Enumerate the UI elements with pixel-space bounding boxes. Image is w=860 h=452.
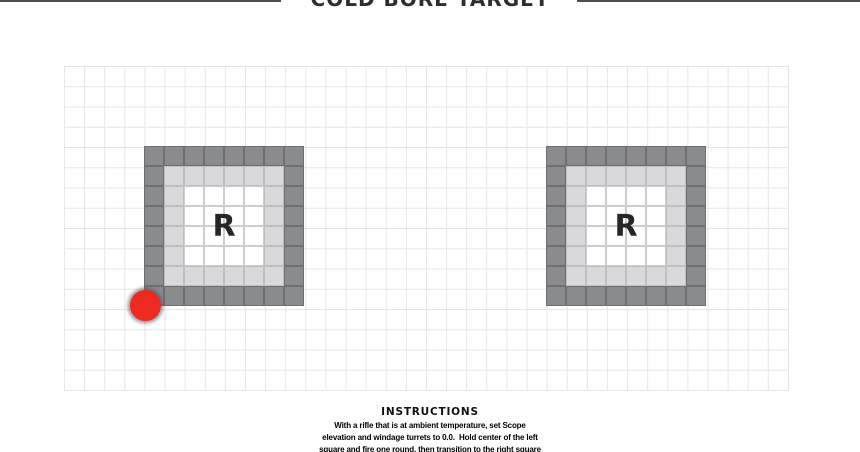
target-cell (284, 166, 304, 186)
target-cell (284, 146, 304, 166)
target-cell (204, 206, 224, 226)
target-cell (566, 206, 586, 226)
target-cell (144, 186, 164, 206)
target-cell (184, 226, 204, 246)
target-cell (686, 286, 706, 306)
target-cell (244, 286, 264, 306)
cold-bore-target-sheet: COLD BORE TARGET R R INSTRUCTIONS With a… (0, 0, 860, 452)
target-cell (224, 286, 244, 306)
target-cell (204, 186, 224, 206)
target-cell (164, 206, 184, 226)
target-cell (284, 286, 304, 306)
target-cell (546, 246, 566, 266)
target-cell (284, 186, 304, 206)
target-cell (686, 246, 706, 266)
right-target: R (546, 146, 706, 306)
target-cell (646, 226, 666, 246)
target-cell (646, 206, 666, 226)
target-cell (566, 146, 586, 166)
target-cell (144, 266, 164, 286)
target-cell (626, 226, 646, 246)
target-cell (546, 206, 566, 226)
target-cell (224, 146, 244, 166)
target-cell (164, 266, 184, 286)
target-cell (244, 146, 264, 166)
target-cell (686, 146, 706, 166)
target-cell (546, 286, 566, 306)
target-cell (606, 146, 626, 166)
target-cell (666, 146, 686, 166)
target-cell (626, 186, 646, 206)
target-cell (586, 266, 606, 286)
right-target-cells (546, 146, 706, 306)
target-cell (586, 146, 606, 166)
target-cell (626, 206, 646, 226)
instructions-line: With a rifle that is at ambient temperat… (0, 420, 860, 432)
target-cell (224, 246, 244, 266)
target-cell (606, 226, 626, 246)
target-cell (546, 226, 566, 246)
target-cell (546, 186, 566, 206)
target-cell (666, 166, 686, 186)
target-cell (686, 206, 706, 226)
target-cell (264, 146, 284, 166)
target-cell (224, 166, 244, 186)
target-cell (606, 266, 626, 286)
target-cell (606, 246, 626, 266)
target-cell (566, 286, 586, 306)
target-cell (566, 186, 586, 206)
instructions-text: With a rifle that is at ambient temperat… (0, 420, 860, 452)
target-cell (546, 266, 566, 286)
target-cell (606, 286, 626, 306)
target-cell (606, 206, 626, 226)
target-cell (586, 166, 606, 186)
target-cell (646, 146, 666, 166)
target-cell (224, 226, 244, 246)
target-cell (264, 166, 284, 186)
target-cell (184, 186, 204, 206)
target-cell (666, 186, 686, 206)
target-cell (244, 226, 264, 246)
target-cell (204, 226, 224, 246)
left-target: R (144, 146, 304, 306)
target-cell (144, 146, 164, 166)
target-cell (284, 246, 304, 266)
target-cell (164, 286, 184, 306)
target-cell (144, 166, 164, 186)
bullet-hole-marker (130, 290, 161, 321)
target-cell (264, 206, 284, 226)
target-cell (626, 266, 646, 286)
left-target-cells (144, 146, 304, 306)
target-cell (244, 206, 264, 226)
target-cell (144, 226, 164, 246)
target-cell (224, 206, 244, 226)
target-cell (264, 186, 284, 206)
target-cell (586, 246, 606, 266)
target-cell (546, 166, 566, 186)
target-cell (284, 206, 304, 226)
target-cell (626, 166, 646, 186)
target-cell (646, 266, 666, 286)
target-cell (686, 166, 706, 186)
target-cell (666, 226, 686, 246)
target-cell (164, 226, 184, 246)
target-cell (566, 266, 586, 286)
target-cell (264, 226, 284, 246)
target-cell (646, 286, 666, 306)
target-cell (224, 186, 244, 206)
target-cell (144, 206, 164, 226)
target-cell (264, 266, 284, 286)
target-cell (646, 246, 666, 266)
target-cell (546, 146, 566, 166)
instructions-block: INSTRUCTIONS With a rifle that is at amb… (0, 406, 860, 452)
target-cell (204, 286, 224, 306)
instructions-line: square and fire one round, then transiti… (0, 444, 860, 452)
target-cell (264, 286, 284, 306)
target-cell (164, 246, 184, 266)
target-cell (606, 186, 626, 206)
target-cell (586, 226, 606, 246)
target-cell (244, 246, 264, 266)
target-cell (204, 146, 224, 166)
target-cell (586, 186, 606, 206)
target-cell (566, 246, 586, 266)
target-cell (204, 166, 224, 186)
target-cell (184, 286, 204, 306)
target-cell (686, 266, 706, 286)
target-cell (204, 246, 224, 266)
target-cell (144, 246, 164, 266)
target-cell (164, 166, 184, 186)
target-cell (184, 206, 204, 226)
target-cell (626, 286, 646, 306)
target-cell (184, 146, 204, 166)
target-cell (666, 246, 686, 266)
target-cell (204, 266, 224, 286)
target-cell (646, 166, 666, 186)
page-title: COLD BORE TARGET (0, 0, 860, 10)
target-cell (586, 206, 606, 226)
target-cell (264, 246, 284, 266)
target-cell (686, 186, 706, 206)
instructions-line: elevation and windage turrets to 0.0. Ho… (0, 432, 860, 444)
target-cell (566, 166, 586, 186)
target-cell (626, 246, 646, 266)
target-cell (606, 166, 626, 186)
target-cell (184, 166, 204, 186)
target-cell (646, 186, 666, 206)
target-cell (284, 226, 304, 246)
target-cell (224, 266, 244, 286)
target-cell (284, 266, 304, 286)
target-cell (184, 266, 204, 286)
target-cell (666, 286, 686, 306)
instructions-heading: INSTRUCTIONS (0, 406, 860, 418)
target-cell (164, 146, 184, 166)
target-cell (244, 166, 264, 186)
target-cell (666, 266, 686, 286)
target-cell (244, 186, 264, 206)
target-cell (244, 266, 264, 286)
target-cell (666, 206, 686, 226)
target-cell (626, 146, 646, 166)
target-cell (566, 226, 586, 246)
target-cell (586, 286, 606, 306)
target-cell (164, 186, 184, 206)
target-cell (686, 226, 706, 246)
target-cell (184, 246, 204, 266)
